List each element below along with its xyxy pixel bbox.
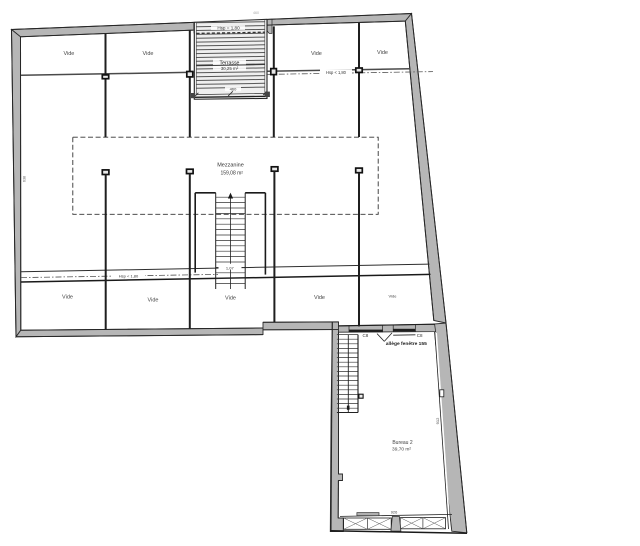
svg-text:Bureau 2: Bureau 2 [392,440,413,446]
svg-text:Hsp = 1,80: Hsp = 1,80 [217,26,240,31]
svg-text:allège fenêtre 155: allège fenêtre 155 [386,341,427,347]
svg-text:Vide: Vide [225,295,236,301]
svg-text:Vide: Vide [148,298,159,304]
svg-text:460: 460 [230,86,237,91]
svg-text:Vide: Vide [377,50,388,56]
svg-text:C8: C8 [363,333,369,338]
svg-text:460: 460 [253,11,259,15]
svg-text:30,25 m²: 30,25 m² [221,66,239,71]
svg-text:1,07: 1,07 [226,265,235,270]
svg-text:Vide: Vide [314,295,325,301]
svg-text:638: 638 [23,176,27,182]
svg-text:912: 912 [435,417,440,424]
svg-text:Mezzanine: Mezzanine [217,163,244,169]
svg-text:Hsp < 1,80: Hsp < 1,80 [119,273,139,278]
svg-text:39,70 m²: 39,70 m² [392,446,411,452]
svg-text:159,08 m²: 159,08 m² [220,170,243,176]
svg-text:Vide: Vide [63,51,74,57]
svg-text:Vide: Vide [389,294,398,299]
svg-text:Hsp < 1,80: Hsp < 1,80 [326,70,347,75]
svg-text:Vide: Vide [62,295,73,301]
svg-text:Vide: Vide [311,51,322,57]
svg-text:C8: C8 [417,333,423,338]
svg-text:Vide: Vide [143,51,154,57]
svg-text:926: 926 [391,509,398,514]
